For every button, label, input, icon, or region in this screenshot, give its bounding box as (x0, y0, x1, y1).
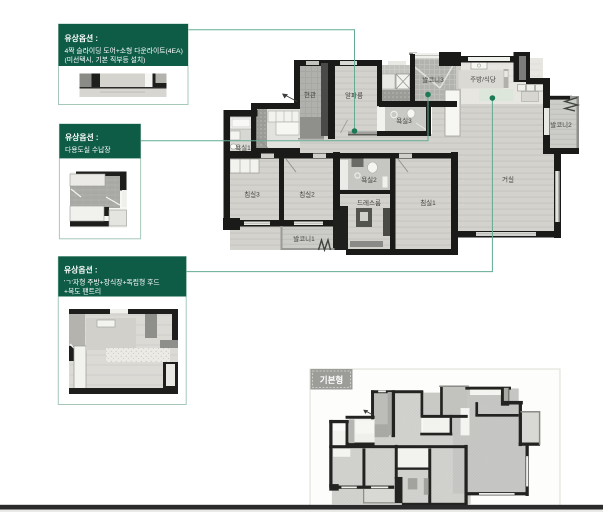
svg-text:거실: 거실 (502, 175, 514, 184)
svg-text:4짝 슬라이딩 도어+소형 다운라이트(4EA): 4짝 슬라이딩 도어+소형 다운라이트(4EA) (65, 46, 183, 55)
svg-text:유상옵션 :: 유상옵션 : (65, 33, 98, 43)
svg-text:주방/식당: 주방/식당 (470, 75, 496, 84)
svg-text:욕실1: 욕실1 (235, 143, 251, 152)
svg-text:(미선택시, 기본 직부등 설치): (미선택시, 기본 직부등 설치) (65, 55, 146, 64)
svg-text:유상옵션 :: 유상옵션 : (64, 265, 97, 275)
svg-text:발코니2: 발코니2 (550, 120, 572, 129)
svg-text:침실2: 침실2 (299, 190, 315, 199)
svg-text:욕실3: 욕실3 (396, 116, 412, 125)
svg-text:기본형: 기본형 (320, 375, 343, 385)
svg-text:침실1: 침실1 (420, 198, 436, 207)
svg-text:발코니1: 발코니1 (293, 234, 315, 243)
svg-text:욕실2: 욕실2 (361, 175, 377, 184)
svg-text:발코니3: 발코니3 (422, 75, 444, 84)
svg-text:+복도 팬트리: +복도 팬트리 (64, 287, 101, 296)
svg-text:유상옵션 :: 유상옵션 : (65, 132, 98, 142)
svg-text:드레스룸: 드레스룸 (357, 198, 381, 207)
svg-text:침실3: 침실3 (244, 190, 260, 199)
svg-text:다용도실 수납장: 다용도실 수납장 (65, 145, 111, 154)
svg-text:'ㄱ'자형 주방+장식장+독립형 후드: 'ㄱ'자형 주방+장식장+독립형 후드 (64, 278, 160, 287)
svg-text:현관: 현관 (304, 90, 316, 99)
